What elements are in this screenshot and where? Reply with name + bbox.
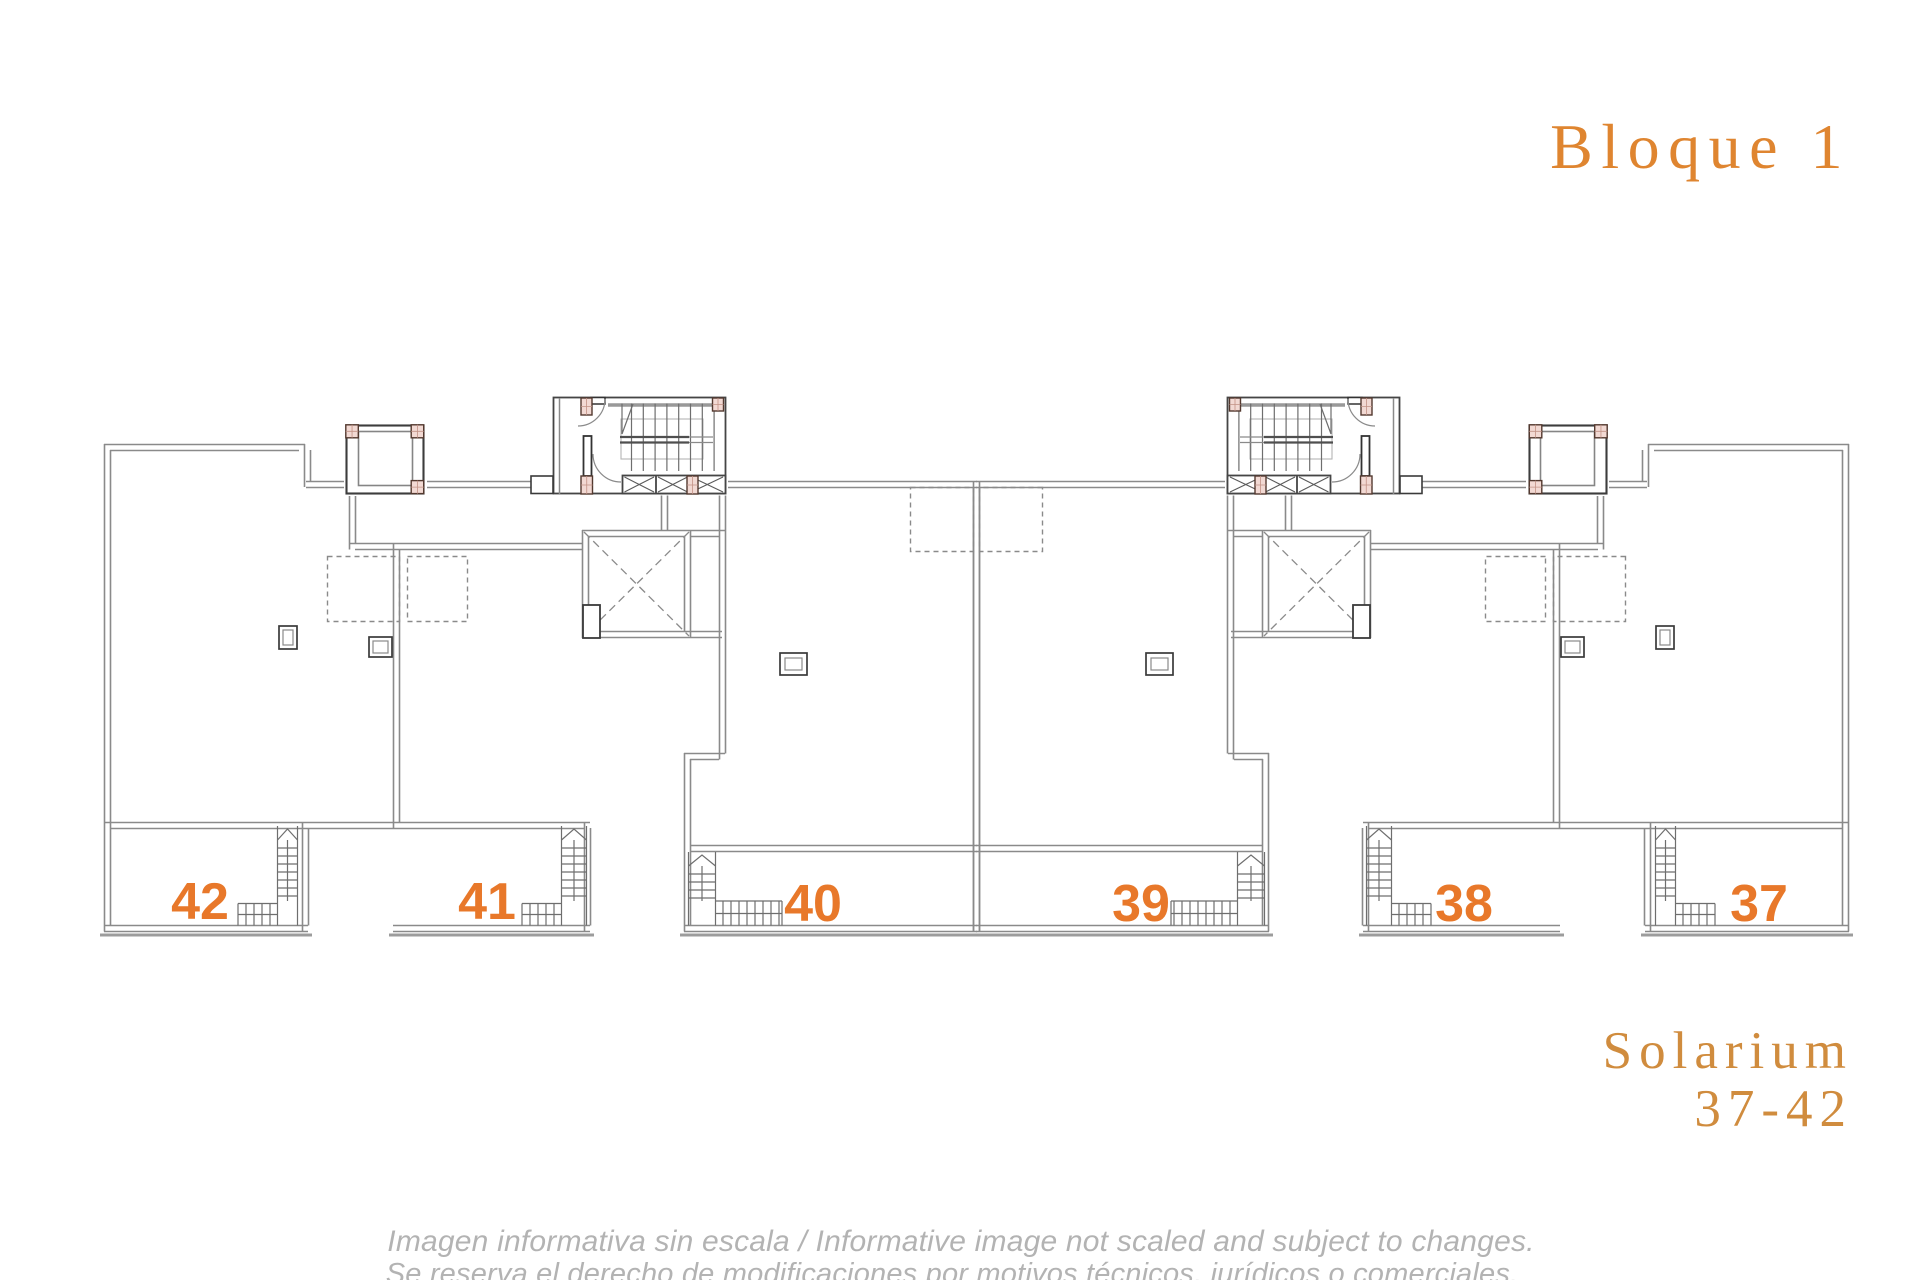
svg-text:Imagen informativa sin escala: Imagen informativa sin escala / Informat… <box>387 1225 1534 1258</box>
svg-text:42: 42 <box>171 873 229 931</box>
svg-text:38: 38 <box>1435 875 1493 933</box>
svg-text:Se reserva el derecho de modif: Se reserva el derecho de modificaciones … <box>386 1258 1519 1280</box>
svg-text:37-42: 37-42 <box>1694 1080 1853 1138</box>
svg-text:Bloque 1: Bloque 1 <box>1550 111 1851 182</box>
svg-text:41: 41 <box>458 873 516 931</box>
svg-text:39: 39 <box>1112 875 1170 933</box>
svg-text:37: 37 <box>1730 875 1788 933</box>
svg-text:40: 40 <box>784 875 842 933</box>
svg-text:Solarium: Solarium <box>1603 1022 1853 1080</box>
